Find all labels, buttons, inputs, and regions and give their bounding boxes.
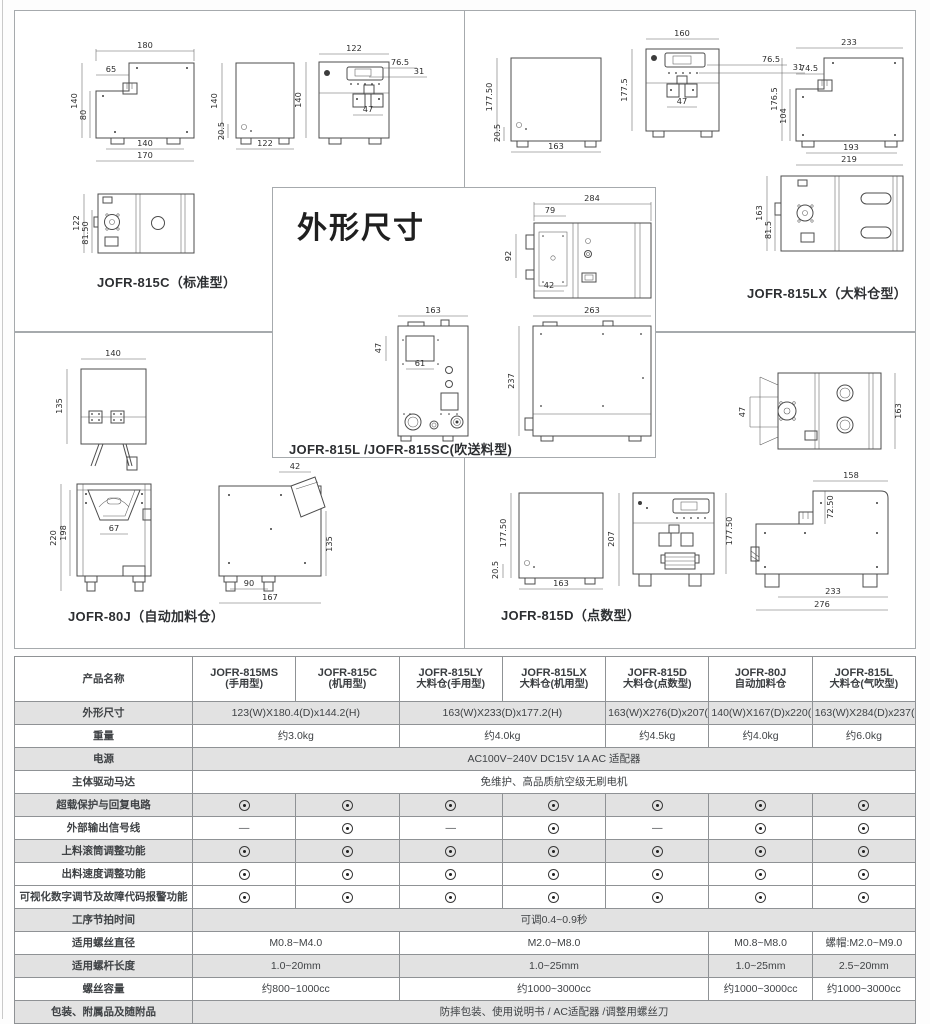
svg-text:104: 104 [778, 108, 788, 124]
header-815ly: JOFR-815LY大料仓(手用型) [399, 657, 502, 702]
header-product-name: 产品名称 [15, 657, 193, 702]
815d-top-view: 47 163 [737, 373, 903, 449]
feature-supported-icon [239, 869, 250, 880]
feature-supported-icon [858, 823, 869, 834]
svg-text:177.5: 177.5 [619, 78, 629, 101]
svg-text:31: 31 [414, 66, 424, 76]
svg-text:233: 233 [825, 586, 841, 596]
header-815ms: JOFR-815MS(手用型) [193, 657, 296, 702]
feature-supported-icon [239, 892, 250, 903]
feature-not-available: — [193, 817, 296, 840]
feature-not-available: — [399, 817, 502, 840]
row-motor: 主体驱动马达 免维护、高品质航空级无刷电机 [15, 771, 916, 794]
815lx-model-label: JOFR-815LX（大料仓型） [747, 286, 907, 301]
svg-text:167: 167 [262, 592, 278, 602]
feature-supported-icon [548, 823, 559, 834]
svg-text:47: 47 [373, 343, 383, 353]
svg-text:237: 237 [506, 373, 516, 389]
feature-supported-icon [342, 892, 353, 903]
svg-text:276: 276 [814, 599, 830, 609]
header-815lx: JOFR-815LX大料仓(机用型) [502, 657, 605, 702]
svg-text:135: 135 [324, 536, 334, 552]
svg-text:163: 163 [548, 141, 564, 151]
815c-top-view: 122 81.50 [71, 194, 194, 253]
feature-supported-icon [445, 846, 456, 857]
row-dimensions: 外形尺寸 123(W)X180.4(D)x144.2(H) 163(W)X233… [15, 702, 916, 725]
svg-text:140: 140 [209, 93, 219, 109]
svg-text:163: 163 [425, 305, 441, 315]
svg-text:122: 122 [346, 43, 362, 53]
feature-supported-icon [755, 869, 766, 880]
panel-jofr-815l: 外形尺寸 284 79 92 42 [272, 187, 656, 458]
svg-text:263: 263 [584, 305, 600, 315]
815c-front-view: 122 76.5 31 140 47 [293, 43, 427, 144]
feature-supported-icon [548, 892, 559, 903]
svg-text:158: 158 [843, 470, 859, 480]
815c-back-view: 140 20.5 122 [209, 63, 294, 149]
815lx-back-view: 177.50 20.5 163 [484, 58, 601, 152]
svg-text:163: 163 [754, 205, 764, 221]
svg-text:80: 80 [78, 110, 88, 120]
svg-text:220: 220 [48, 530, 58, 546]
feature-supported-icon [239, 800, 250, 811]
815d-back-view: 177.50 20.5 163 [490, 493, 603, 589]
815l-side-view: 263 237 [506, 305, 651, 441]
row-roller-adjust: 上料滚筒调整功能 [15, 840, 916, 863]
feature-supported-icon [445, 869, 456, 880]
feature-supported-icon [342, 846, 353, 857]
svg-text:74.5: 74.5 [800, 63, 818, 73]
row-output-signal: 外部输出信号线 — — — [15, 817, 916, 840]
815d-side-view: 158 72.50 233 276 [751, 470, 888, 610]
815c-model-label: JOFR-815C（标准型） [97, 275, 236, 290]
815lx-top-view: 163 81.5 [754, 176, 903, 251]
815c-side-view: 180 65 140 80 140 170 [69, 40, 194, 161]
table-header-row: 产品名称 JOFR-815MS(手用型) JOFR-815C(机用型) JOFR… [15, 657, 916, 702]
feature-supported-icon [342, 800, 353, 811]
80j-model-label: JOFR-80J（自动加料仓） [68, 609, 224, 624]
row-power: 电源 AC100V~240V DC15V 1A AC 适配器 [15, 748, 916, 771]
row-screw-capacity: 螺丝容量 约800~1000cc 约1000~3000cc 约1000~3000… [15, 978, 916, 1001]
svg-text:20.5: 20.5 [216, 122, 226, 140]
svg-text:47: 47 [363, 104, 373, 114]
row-packaging: 包装、附属品及随附品 防摔包装、使用说明书 / AC适配器 /调整用螺丝刀 [15, 1001, 916, 1024]
80j-side-view: 42 135 90 167 [219, 461, 334, 603]
80j-front-view: 220 198 67 [48, 484, 151, 591]
svg-text:207: 207 [606, 531, 616, 547]
feature-supported-icon [755, 846, 766, 857]
svg-text:47: 47 [737, 407, 747, 417]
row-digital-display: 可视化数字调节及故障代码报警功能 [15, 886, 916, 909]
header-80j: JOFR-80J自动加料仓 [709, 657, 812, 702]
svg-text:160: 160 [674, 28, 690, 38]
svg-text:163: 163 [553, 578, 569, 588]
feature-supported-icon [858, 846, 869, 857]
svg-text:177.50: 177.50 [484, 83, 494, 112]
row-weight: 重量 约3.0kg 约4.0kg 约4.5kg 约4.0kg 约6.0kg [15, 725, 916, 748]
svg-text:67: 67 [109, 523, 119, 533]
row-cycle-time: 工序节拍时间 可调0.4~0.9秒 [15, 909, 916, 932]
svg-text:135: 135 [54, 398, 64, 414]
datasheet-page: { "title": "外形尺寸", "models": { "c815": {… [0, 0, 930, 1019]
header-815c: JOFR-815C(机用型) [296, 657, 399, 702]
feature-supported-icon [652, 869, 663, 880]
spec-table: 产品名称 JOFR-815MS(手用型) JOFR-815C(机用型) JOFR… [14, 656, 916, 1024]
feature-supported-icon [445, 892, 456, 903]
svg-text:79: 79 [545, 205, 555, 215]
svg-text:90: 90 [244, 578, 254, 588]
80j-top-view: 140 135 [54, 348, 146, 470]
815d-front-view: 207 177.50 [606, 493, 734, 586]
feature-supported-icon [652, 892, 663, 903]
feature-supported-icon [548, 869, 559, 880]
feature-supported-icon [548, 846, 559, 857]
feature-supported-icon [858, 800, 869, 811]
svg-text:81.50: 81.50 [80, 221, 90, 244]
feature-not-available: — [606, 817, 709, 840]
svg-text:76.5: 76.5 [391, 57, 409, 67]
feature-supported-icon [755, 800, 766, 811]
svg-text:20.5: 20.5 [492, 124, 502, 142]
feature-supported-icon [342, 869, 353, 880]
815l-front-view: 163 47 61 [373, 305, 468, 441]
svg-text:72.50: 72.50 [825, 495, 835, 518]
svg-text:61: 61 [415, 358, 425, 368]
svg-text:42: 42 [290, 461, 300, 471]
svg-text:42: 42 [544, 280, 554, 290]
svg-text:198: 198 [58, 525, 68, 541]
page-edge-line [2, 0, 3, 1019]
row-overload-protection: 超载保护与回复电路 [15, 794, 916, 817]
svg-text:47: 47 [677, 96, 687, 106]
svg-text:140: 140 [293, 92, 303, 108]
svg-text:140: 140 [69, 93, 79, 109]
feature-supported-icon [858, 869, 869, 880]
feature-supported-icon [652, 800, 663, 811]
svg-text:233: 233 [841, 37, 857, 47]
815d-model-label: JOFR-815D（点数型） [501, 608, 640, 623]
row-screw-length: 适用螺杆长度 1.0~20mm 1.0~25mm 1.0~25mm 2.5~20… [15, 955, 916, 978]
feature-supported-icon [755, 823, 766, 834]
feature-supported-icon [858, 892, 869, 903]
row-screw-diameter: 适用螺丝直径 M0.8~M4.0 M2.0~M8.0 M0.8~M8.0 螺帽:… [15, 932, 916, 955]
svg-text:140: 140 [105, 348, 121, 358]
svg-text:177.50: 177.50 [498, 519, 508, 548]
svg-text:76.5: 76.5 [762, 54, 780, 64]
svg-text:176.5: 176.5 [769, 87, 779, 110]
header-815l: JOFR-815L大料仓(气吹型) [812, 657, 915, 702]
feature-supported-icon [342, 823, 353, 834]
svg-text:193: 193 [843, 142, 859, 152]
feature-supported-icon [755, 892, 766, 903]
svg-text:284: 284 [584, 193, 600, 203]
svg-text:170: 170 [137, 150, 153, 160]
row-speed-adjust: 出料速度调整功能 [15, 863, 916, 886]
svg-text:81.5: 81.5 [763, 221, 773, 239]
feature-supported-icon [445, 800, 456, 811]
feature-supported-icon [652, 846, 663, 857]
svg-text:122: 122 [257, 138, 273, 148]
svg-text:177.50: 177.50 [724, 517, 734, 546]
815l-model-label: JOFR-815L /JOFR-815SC(吹送料型) [289, 442, 512, 457]
svg-text:20.5: 20.5 [490, 561, 500, 579]
feature-supported-icon [239, 846, 250, 857]
815lx-side-view: 233 74.5 176.5 104 193 219 [769, 37, 903, 165]
svg-text:219: 219 [841, 154, 857, 164]
drawing-jofr-815l: 外形尺寸 284 79 92 42 [273, 188, 655, 457]
815l-top-view: 284 79 92 42 [503, 193, 651, 298]
svg-text:163: 163 [893, 403, 903, 419]
svg-text:180: 180 [137, 40, 153, 50]
svg-text:65: 65 [106, 64, 116, 74]
section-title: 外形尺寸 [297, 212, 425, 245]
svg-text:140: 140 [137, 138, 153, 148]
feature-supported-icon [548, 800, 559, 811]
svg-text:92: 92 [503, 251, 513, 261]
header-815d: JOFR-815D大料仓(点数型) [606, 657, 709, 702]
